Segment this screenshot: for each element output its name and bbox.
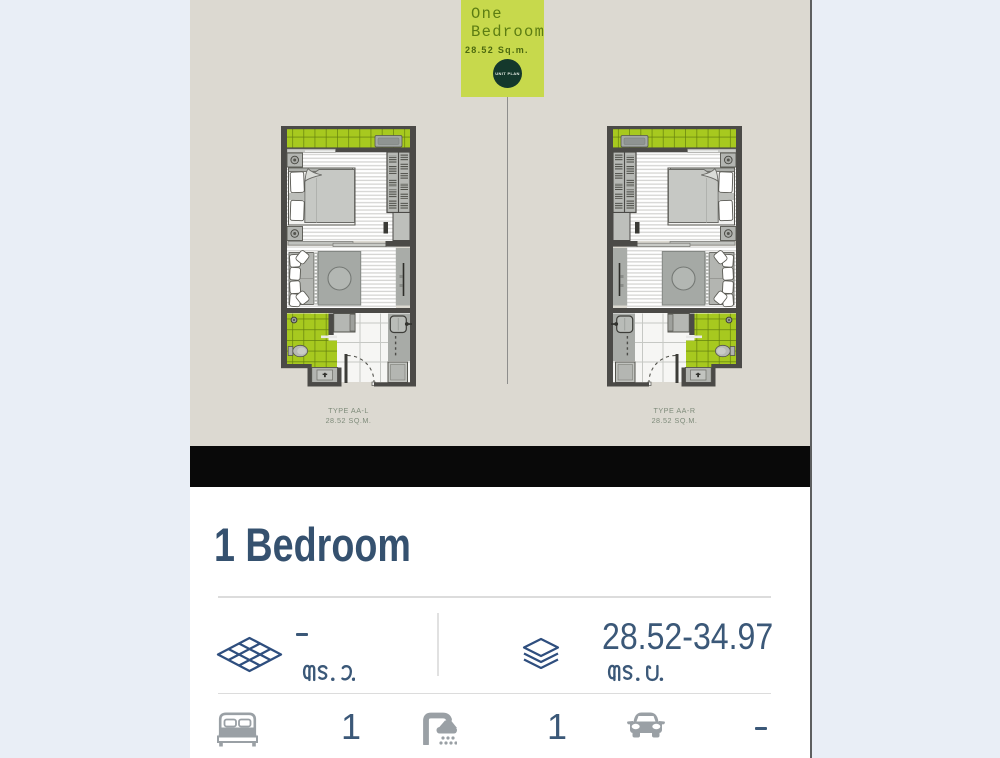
svg-text:UNIT PLAN: UNIT PLAN — [495, 71, 519, 76]
